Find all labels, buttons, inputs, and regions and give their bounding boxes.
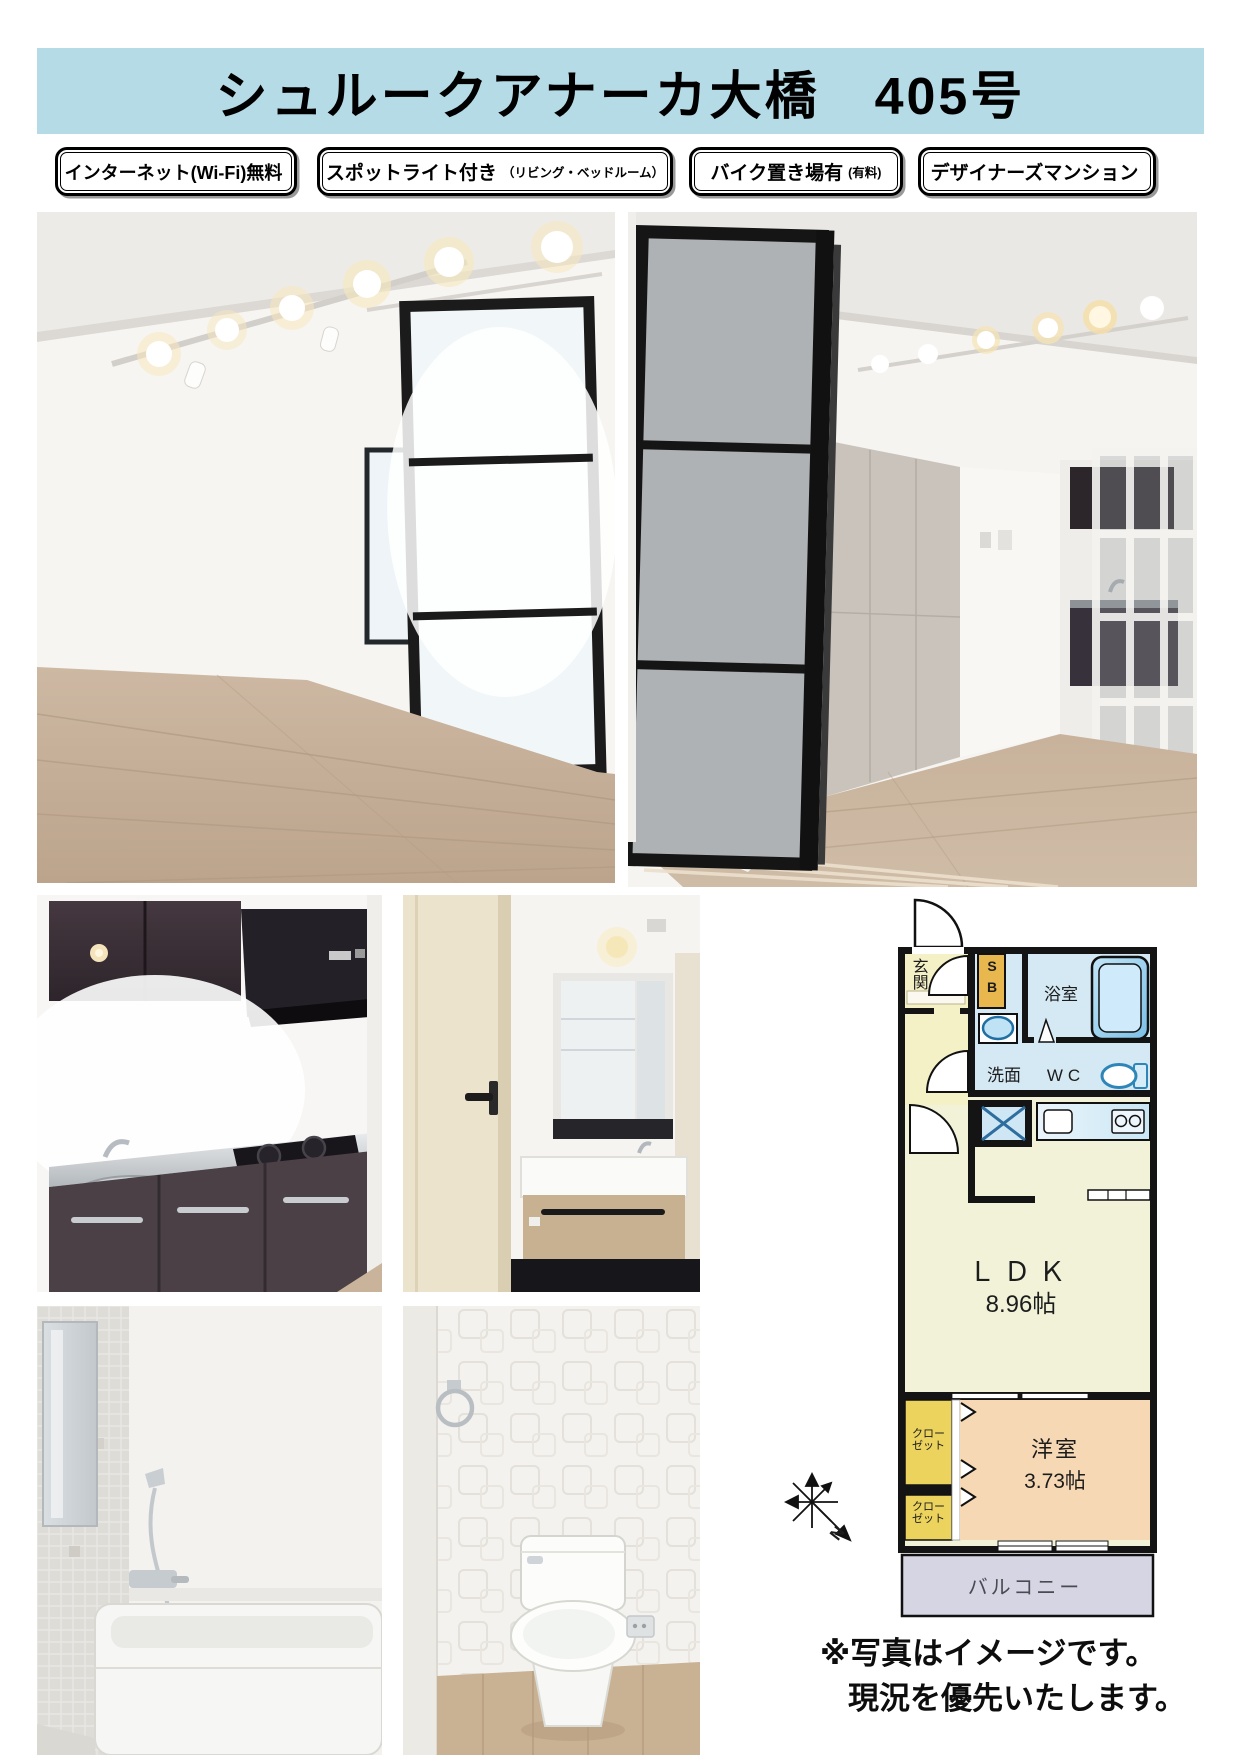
badge-spotlight-sublabel: （リビング・ベッドルーム）: [502, 162, 664, 181]
room-label-ldk: ＬＤＫ: [941, 1258, 1101, 1288]
room-label-bathroom: 浴室: [1026, 986, 1096, 1005]
badge-bike-label: バイク置き場有: [711, 158, 844, 185]
badge-spotlight-label: スポットライト付き: [326, 158, 497, 185]
room-label-closet-1: クローゼット: [903, 1428, 954, 1452]
sliding-door-icon: [628, 226, 841, 871]
photo-washbasin: [403, 895, 700, 1292]
badge-spotlight: スポットライト付き （リビング・ベッドルーム）: [317, 147, 673, 196]
disclaimer-line-1: ※写真はイメージです。: [820, 1632, 1186, 1677]
room-label-balcony: バルコニー: [945, 1577, 1105, 1599]
floor-plan: 玄関 SB 浴室 洗面 WC ＬＤＫ 8.96帖 クローゼット クローゼット 洋…: [770, 890, 1170, 1630]
photo-kitchen: [37, 895, 382, 1292]
photo-toilet: [403, 1306, 700, 1755]
badge-designers-mansion: デザイナーズマンション: [918, 147, 1156, 196]
room-label-wc: WC: [1038, 1067, 1094, 1086]
badge-internet-label: インターネット(Wi-Fi)無料: [65, 159, 283, 185]
photo-living-room-1: [37, 212, 615, 883]
room-label-entrance: 玄関: [909, 958, 927, 990]
photo-bathroom: [37, 1306, 382, 1755]
room-label-shoe-box: SB: [981, 956, 1003, 998]
badge-bike-parking: バイク置き場有 (有料): [689, 147, 903, 196]
room-label-closet-2: クローゼット: [903, 1501, 954, 1525]
flyer-page: シュルークアナーカ大橋 405号 インターネット(Wi-Fi)無料 スポットライ…: [0, 0, 1241, 1755]
room-label-washroom: 洗面: [969, 1067, 1039, 1086]
page-title: シュルークアナーカ大橋 405号: [216, 54, 1026, 129]
badge-designers-label: デザイナーズマンション: [931, 158, 1139, 185]
room-label-ldk-size: 8.96帖: [941, 1292, 1101, 1318]
header-bar: シュルークアナーカ大橋 405号: [37, 48, 1204, 134]
photo-living-room-2: [628, 212, 1197, 887]
entrance-door-arc-icon: [915, 900, 962, 947]
disclaimer-line-2: 現況を優先いたします。: [848, 1677, 1186, 1722]
room-label-bedroom-size: 3.73帖: [995, 1470, 1115, 1493]
toilet-icon: [1102, 1064, 1147, 1088]
badge-bike-sublabel: (有料): [848, 162, 881, 181]
disclaimer-note: ※写真はイメージです。 現況を優先いたします。: [820, 1632, 1186, 1722]
washbasin-icon: [983, 1017, 1013, 1039]
room-label-bedroom: 洋室: [995, 1438, 1115, 1462]
badge-internet-free: インターネット(Wi-Fi)無料: [55, 147, 297, 196]
kitchen-counter-icon: [1037, 1103, 1150, 1140]
